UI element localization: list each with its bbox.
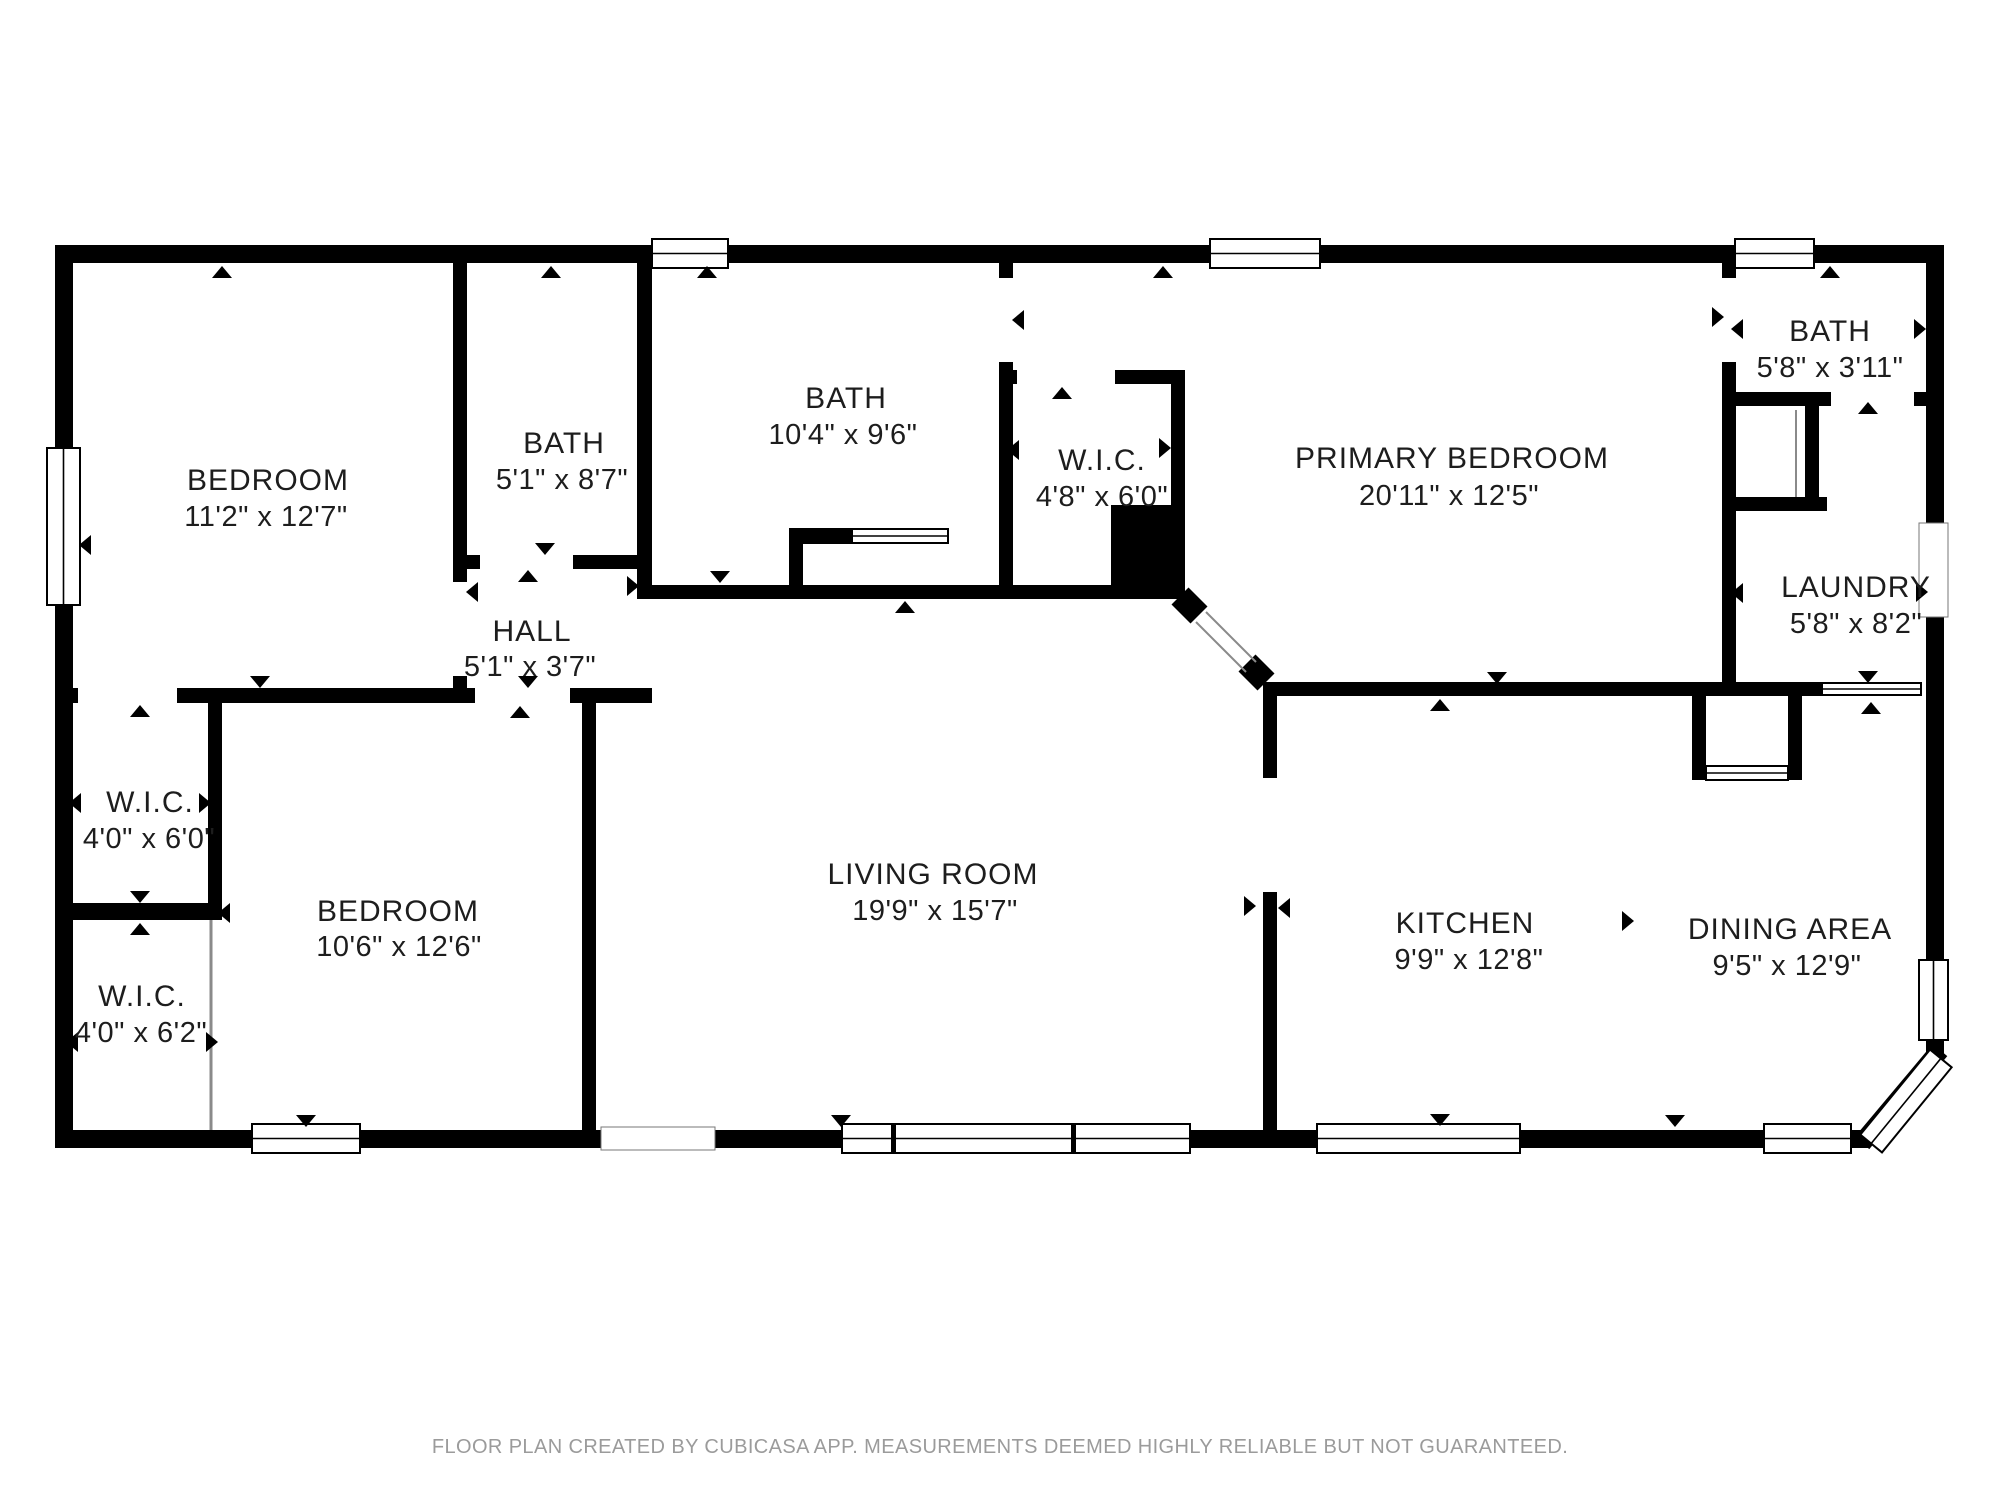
window-frame xyxy=(601,1127,715,1150)
wall xyxy=(1263,892,1277,1130)
window xyxy=(1764,1124,1851,1153)
window xyxy=(652,239,728,268)
window xyxy=(1317,1124,1520,1153)
wall xyxy=(1722,362,1736,696)
room-dimensions-label: 4'0" x 6'2" xyxy=(75,1017,207,1049)
wall xyxy=(573,555,637,569)
window xyxy=(1735,239,1814,268)
window xyxy=(252,1124,360,1153)
room-name-label: W.I.C. xyxy=(98,980,186,1013)
wall-diagonal xyxy=(1247,663,1266,682)
window xyxy=(47,448,80,605)
window xyxy=(852,529,948,543)
room-dimensions-label: 4'8" x 6'0" xyxy=(1036,481,1168,513)
room-name-label: BATH xyxy=(1789,315,1871,348)
wall xyxy=(453,263,467,582)
window xyxy=(1822,683,1921,695)
room-name-label: W.I.C. xyxy=(106,786,194,819)
wall xyxy=(55,688,78,703)
disclaimer-text: FLOOR PLAN CREATED BY CUBICASA APP. MEAS… xyxy=(0,1436,2000,1459)
room-dimensions-label: 4'0" x 6'0" xyxy=(83,823,215,855)
wall xyxy=(1171,370,1185,505)
room-name-label: BATH xyxy=(805,382,887,415)
window xyxy=(601,1127,715,1150)
room-name-label: KITCHEN xyxy=(1396,907,1535,940)
room-name-label: BEDROOM xyxy=(187,464,349,497)
room-dimensions-label: 10'6" x 12'6" xyxy=(316,931,482,963)
wall xyxy=(465,555,480,569)
room-dimensions-label: 20'11" x 12'5" xyxy=(1359,480,1539,512)
wall xyxy=(1805,406,1819,511)
wall xyxy=(1914,392,1926,406)
window-post xyxy=(1071,1124,1076,1153)
wall xyxy=(789,544,803,589)
room-name-label: DINING AREA xyxy=(1688,913,1892,946)
wall xyxy=(55,903,208,920)
room-name-label: PRIMARY BEDROOM xyxy=(1295,442,1609,475)
wall xyxy=(1111,505,1185,599)
room-name-label: LIVING ROOM xyxy=(827,858,1038,891)
wall xyxy=(1736,497,1827,511)
room-dimensions-label: 5'1" x 8'7" xyxy=(496,464,628,496)
window xyxy=(1919,960,1948,1040)
wall xyxy=(1788,696,1802,780)
wall xyxy=(1736,392,1831,406)
room-name-label: LAUNDRY xyxy=(1781,571,1931,604)
room-dimensions-label: 5'8" x 8'2" xyxy=(1790,608,1922,640)
floor-plan: BEDROOM11'2" x 12'7"BATH5'1" x 8'7"BATH1… xyxy=(0,0,2000,1500)
window xyxy=(1706,766,1788,780)
wall xyxy=(999,263,1013,278)
wall xyxy=(637,585,1185,599)
window xyxy=(842,1124,1190,1153)
room-dimensions-label: 5'1" x 3'7" xyxy=(464,651,596,683)
wall-diagonal xyxy=(1180,596,1199,615)
floor-plan-canvas: BEDROOM11'2" x 12'7"BATH5'1" x 8'7"BATH1… xyxy=(0,0,2000,1500)
wall xyxy=(55,245,1944,263)
room-dimensions-label: 9'5" x 12'9" xyxy=(1713,950,1862,982)
wall xyxy=(1722,263,1736,278)
wall xyxy=(208,688,222,920)
room-dimensions-label: 10'4" x 9'6" xyxy=(769,419,918,451)
room-dimensions-label: 5'8" x 3'11" xyxy=(1757,352,1904,384)
wall xyxy=(999,370,1013,585)
wall xyxy=(1926,245,1944,1055)
room-name-label: HALL xyxy=(492,615,571,648)
wall xyxy=(582,688,596,1130)
wall xyxy=(637,263,652,585)
window-post xyxy=(891,1124,896,1153)
wall xyxy=(1277,682,1705,696)
wall xyxy=(789,528,852,544)
window xyxy=(1210,239,1320,268)
room-dimensions-label: 19'9" x 15'7" xyxy=(852,895,1018,927)
wall xyxy=(1263,682,1277,778)
room-dimensions-label: 9'9" x 12'8" xyxy=(1395,944,1544,976)
room-name-label: BATH xyxy=(523,427,605,460)
room-name-label: W.I.C. xyxy=(1058,444,1146,477)
room-name-label: BEDROOM xyxy=(317,895,479,928)
room-dimensions-label: 11'2" x 12'7" xyxy=(184,501,347,533)
wall xyxy=(999,362,1013,370)
wall xyxy=(1692,696,1706,780)
